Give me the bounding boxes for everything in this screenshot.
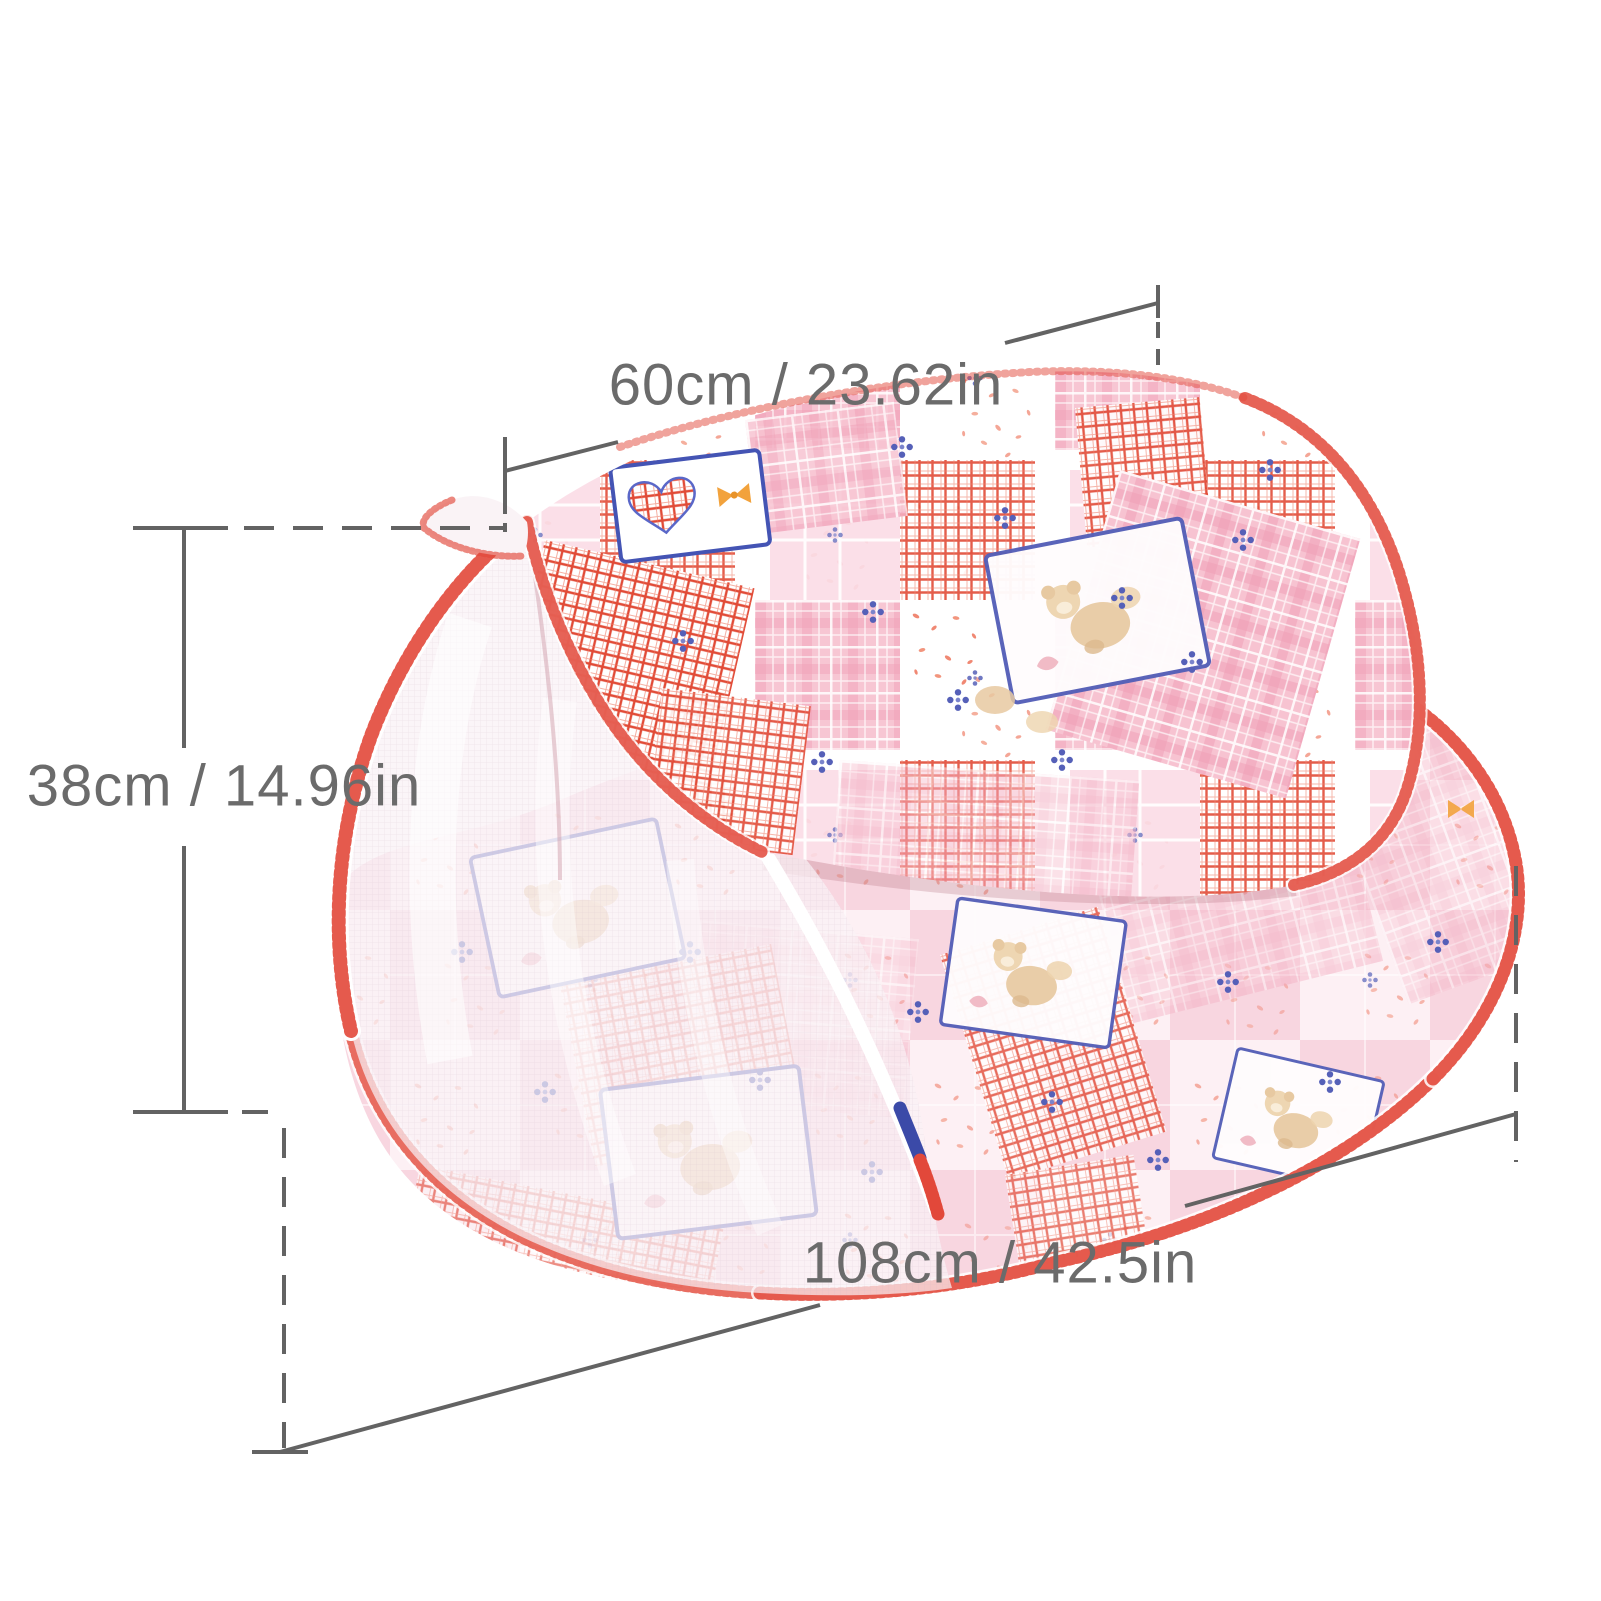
bear-patch (940, 898, 1126, 1048)
width-dimension-label: 60cm / 23.62in (609, 352, 1003, 419)
heart-patch (610, 450, 770, 563)
length-dimension-label: 108cm / 42.5in (803, 1230, 1197, 1297)
peak-fold (423, 496, 528, 556)
product-dimension-figure: 60cm / 23.62in 38cm / 14.96in 108cm / 42… (0, 0, 1601, 1601)
height-dimension-label: 38cm / 14.96in (27, 753, 421, 820)
